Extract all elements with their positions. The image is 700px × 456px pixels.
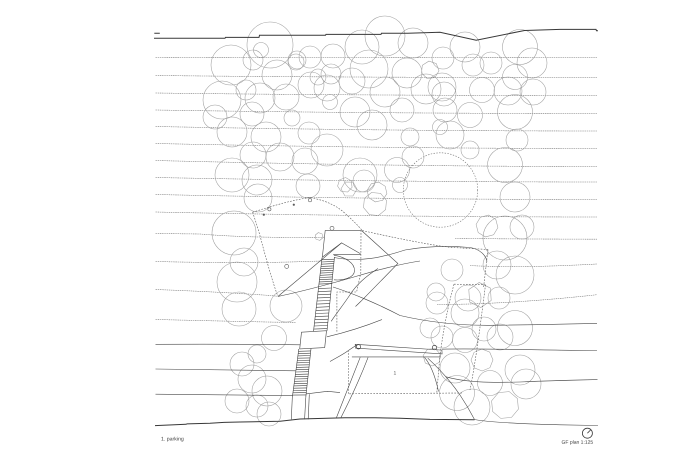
svg-text:1: 1 xyxy=(393,371,396,377)
svg-text:GF plan 1:125: GF plan 1:125 xyxy=(561,440,593,446)
svg-text:1. parking: 1. parking xyxy=(161,437,184,443)
